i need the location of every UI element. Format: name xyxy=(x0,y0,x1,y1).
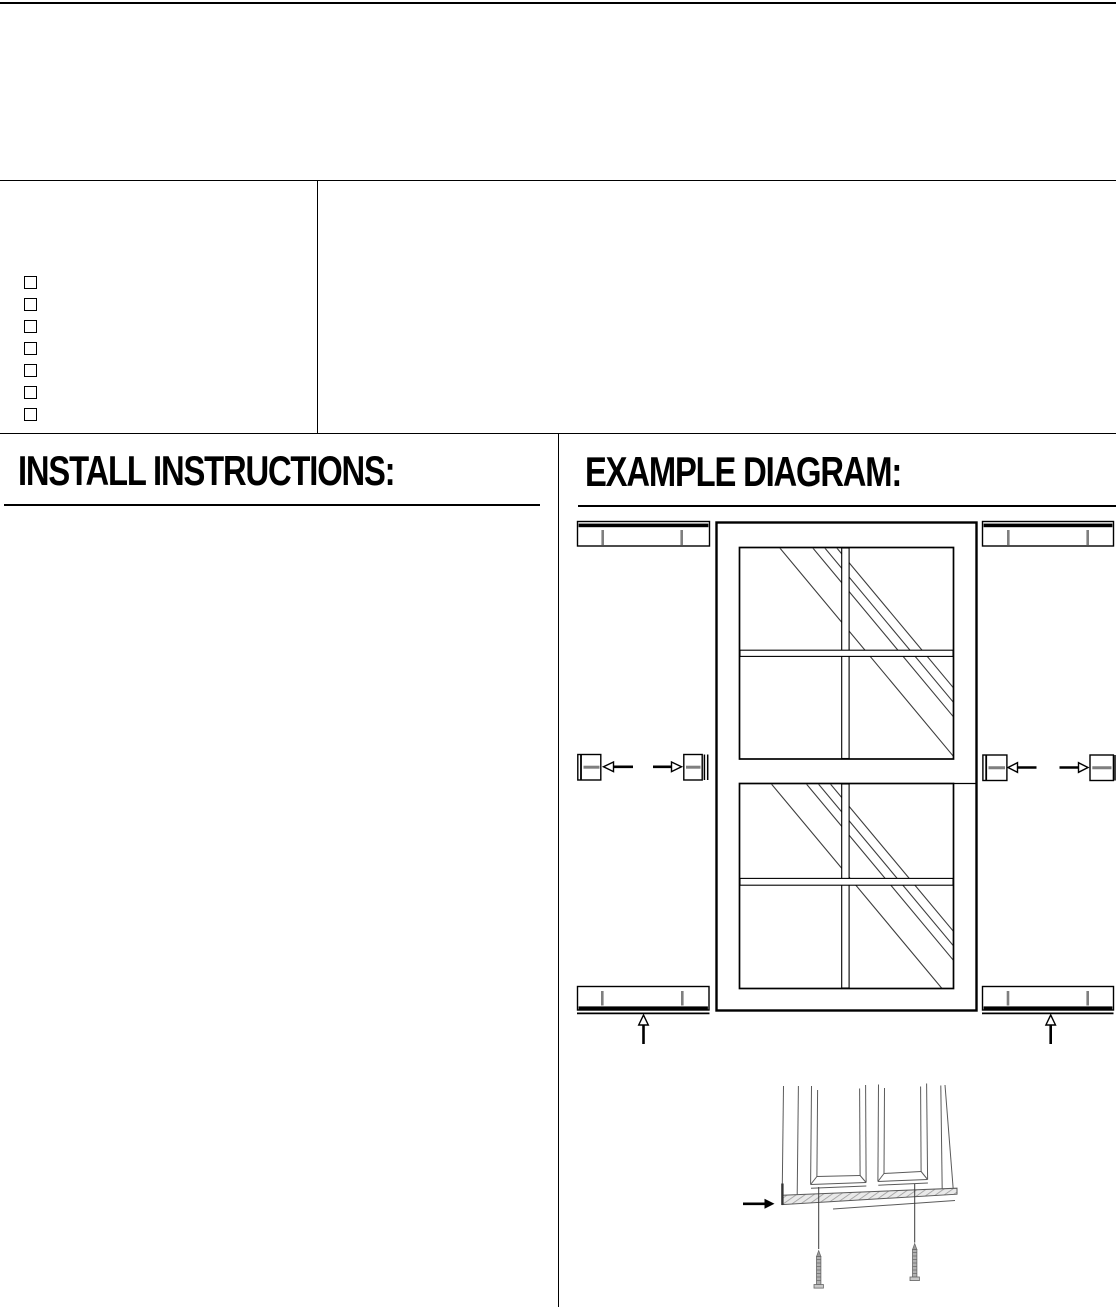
side-bracket xyxy=(578,755,601,781)
bottom-mounting-rail-left xyxy=(577,987,710,1014)
raised-panel xyxy=(878,1084,928,1186)
shutter-bottom-closeup xyxy=(743,1084,957,1289)
top-border-line xyxy=(0,2,1116,4)
arrow-up-icon xyxy=(639,1015,649,1044)
mounting-screw xyxy=(910,1244,919,1281)
arrow-up-icon xyxy=(1046,1015,1056,1044)
example-diagram-underline xyxy=(578,505,1116,507)
header-column-divider xyxy=(317,180,319,433)
side-bracket-pair-right xyxy=(983,755,1116,781)
side-bracket xyxy=(684,755,708,781)
sill-rail xyxy=(782,1184,957,1210)
checkbox[interactable] xyxy=(24,408,37,421)
checkbox[interactable] xyxy=(24,386,37,399)
checkbox[interactable] xyxy=(24,342,37,355)
install-instructions-heading: INSTALL INSTRUCTIONS: xyxy=(18,447,394,495)
checkbox[interactable] xyxy=(24,364,37,377)
example-diagram xyxy=(558,510,1116,1307)
example-diagram-heading: EXAMPLE DIAGRAM: xyxy=(585,448,901,496)
checkbox[interactable] xyxy=(24,298,37,311)
arrow-right-icon xyxy=(743,1199,775,1209)
arrow-left-icon xyxy=(1008,763,1037,773)
upper-sash xyxy=(740,547,955,759)
arrow-right-icon xyxy=(653,762,682,772)
instruction-sheet: INSTALL INSTRUCTIONS: EXAMPLE DIAGRAM: xyxy=(0,0,1116,1307)
arrow-right-icon xyxy=(1060,763,1089,773)
header-divider-line xyxy=(0,180,1116,182)
install-instructions-underline xyxy=(4,504,540,506)
checkbox-column xyxy=(24,276,37,430)
checkbox[interactable] xyxy=(24,320,37,333)
top-mounting-rail-left xyxy=(578,522,710,547)
double-hung-window-icon xyxy=(717,523,977,1011)
mounting-screw xyxy=(814,1251,823,1289)
checkbox[interactable] xyxy=(24,276,37,289)
side-bracket xyxy=(983,755,1007,781)
arrow-left-icon xyxy=(604,762,634,772)
raised-panel xyxy=(811,1085,867,1188)
side-bracket xyxy=(1090,755,1116,781)
top-mounting-rail-right xyxy=(983,522,1114,547)
side-bracket-pair-left xyxy=(578,755,708,781)
lower-sash xyxy=(740,784,977,989)
bottom-mounting-rail-right xyxy=(982,987,1114,1014)
